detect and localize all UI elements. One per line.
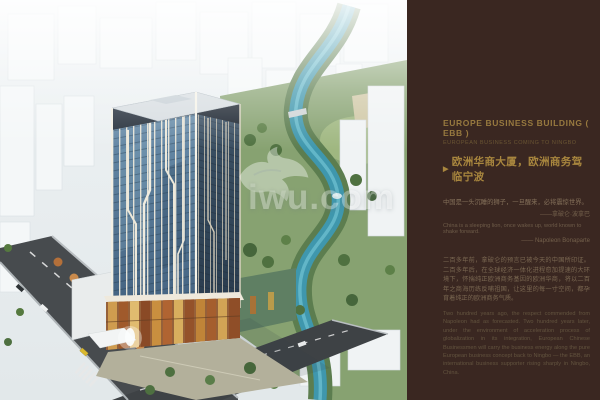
quote-chinese-attribution: ——拿破仑·波拿巴 — [443, 209, 590, 218]
haze-overlay — [0, 0, 407, 150]
architectural-rendering: iwu.com — [0, 0, 407, 400]
body-paragraph-chinese: 二百多年前，拿破仑的预言已被今天的中国所印证。二百多年后，在全球经济一体化进程愈… — [443, 256, 590, 304]
body-paragraph-english: Two hundred years ago, the respect comme… — [443, 310, 590, 377]
entry-sculpture — [125, 328, 135, 346]
quote-english: China is a sleeping lion, once wakes up,… — [443, 223, 590, 235]
watermark: iwu.com — [218, 146, 413, 242]
annex-panel — [250, 296, 256, 314]
title-cn-text: 欧洲华商大厦，欧洲商务驾临宁波 — [452, 154, 590, 184]
watermark-text: iwu.com — [248, 178, 395, 218]
quote-chinese: 中国是一头沉睡的狮子，一旦醒来，必将震惊世界。 — [443, 197, 590, 206]
subtitle-en: EUROPEAN BUSINESS COMING TO NINGBO — [443, 140, 590, 146]
info-panel: EUROPE BUSINESS BUILDING ( EBB ) EUROPEA… — [407, 0, 600, 400]
brochure-page: iwu.com EUROPE BUSINESS BUILDING ( EBB )… — [0, 0, 600, 400]
arrow-icon: ▶ — [443, 165, 449, 173]
quote-english-attribution: —— Napoleon Bonaparte — [443, 238, 590, 244]
title-en: EUROPE BUSINESS BUILDING ( EBB ) — [443, 118, 590, 138]
title-cn: ▶ 欧洲华商大厦，欧洲商务驾临宁波 — [443, 154, 590, 184]
annex-panel — [268, 292, 274, 310]
